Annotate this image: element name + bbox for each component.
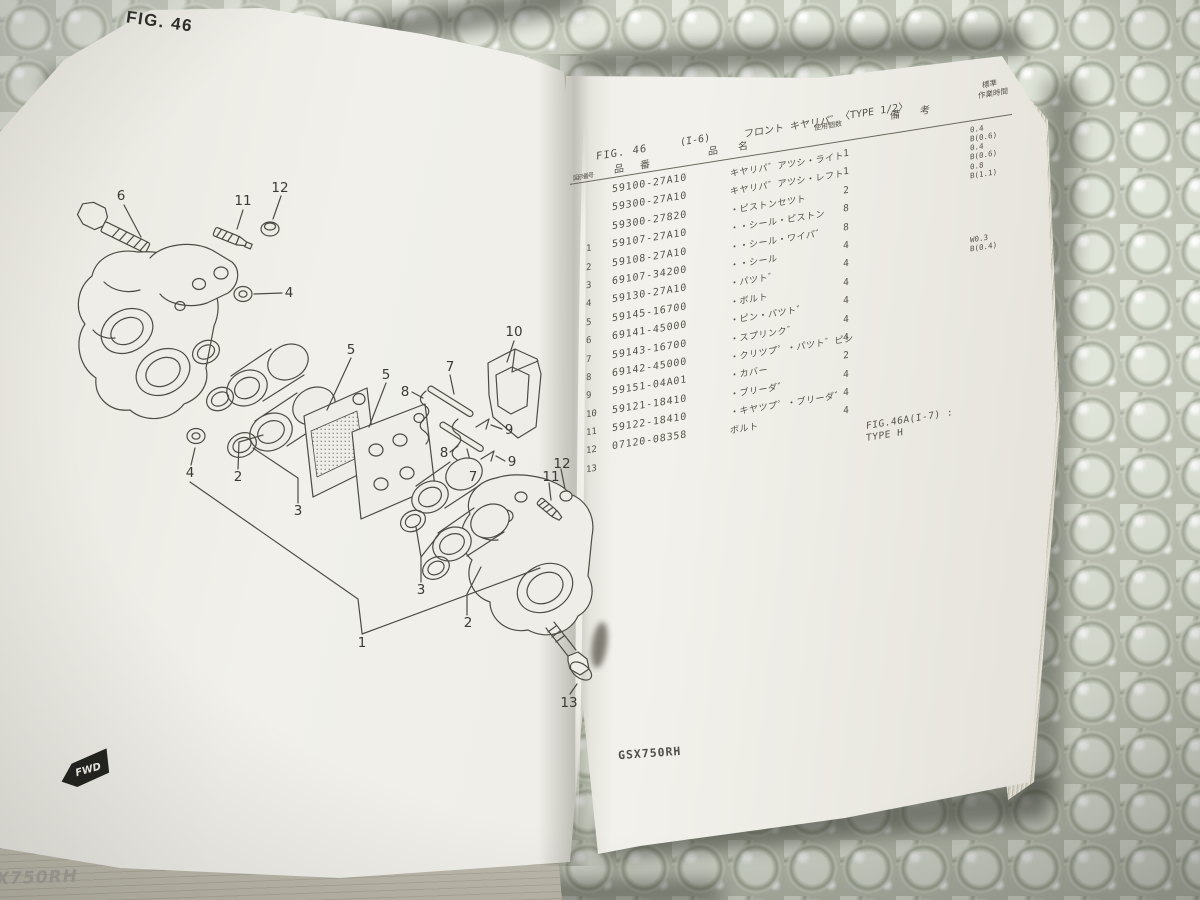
cell-ref: 7 — [586, 354, 591, 365]
photo-of-parts-catalog: X750RH — [0, 0, 1200, 900]
parts-table: FIG. 46 (I-6) フロント キヤリパ゛ 〈TYPE 1/2〉 標準 図… — [588, 76, 1058, 150]
cell-qty: 2 — [834, 349, 858, 364]
cell-qty: 4 — [834, 257, 858, 272]
cell-qty: 4 — [834, 312, 858, 327]
cell-qty: 8 — [834, 201, 858, 216]
cell-name: ボルト — [730, 419, 759, 437]
cell-ref: 1 — [586, 244, 591, 255]
cell-ref: 10 — [586, 408, 597, 420]
cell-qty: 4 — [834, 293, 858, 308]
cell-qty — [834, 422, 858, 426]
cell-ref: 9 — [586, 391, 591, 402]
cell-ref: 11 — [586, 427, 597, 439]
cell-ref: 3 — [586, 280, 591, 291]
cell-ref: 8 — [586, 372, 591, 383]
model-code: GSX750RH — [618, 744, 682, 762]
cell-ref: 5 — [586, 317, 591, 328]
cell-qty: 8 — [834, 220, 858, 235]
cell-qty: 4 — [834, 404, 858, 419]
cell-ref: 13 — [586, 463, 597, 475]
cell-qty: 1 — [834, 165, 858, 180]
cell-ref: 6 — [586, 336, 591, 347]
cell-qty: 4 — [834, 367, 858, 382]
cell-qty: 2 — [834, 183, 858, 198]
cell-ref: 4 — [586, 299, 591, 310]
cell-qty: 1 — [834, 146, 858, 161]
cell-qty: 4 — [834, 330, 858, 345]
parts-rows: 59100-27A10キヤリパ゛アツシ・ライト10.4B(0.6)59300-2… — [588, 113, 1058, 482]
cell-qty: 4 — [834, 238, 858, 253]
cell-ref: 12 — [586, 445, 597, 457]
table-layer: FIG. 46 (I-6) フロント キヤリパ゛ 〈TYPE 1/2〉 標準 図… — [0, 0, 1200, 900]
cell-ref: 2 — [586, 262, 591, 273]
cell-qty: 4 — [834, 385, 858, 400]
table-fig-ref: (I-6) — [680, 133, 710, 149]
cell-qty: 4 — [834, 275, 858, 290]
